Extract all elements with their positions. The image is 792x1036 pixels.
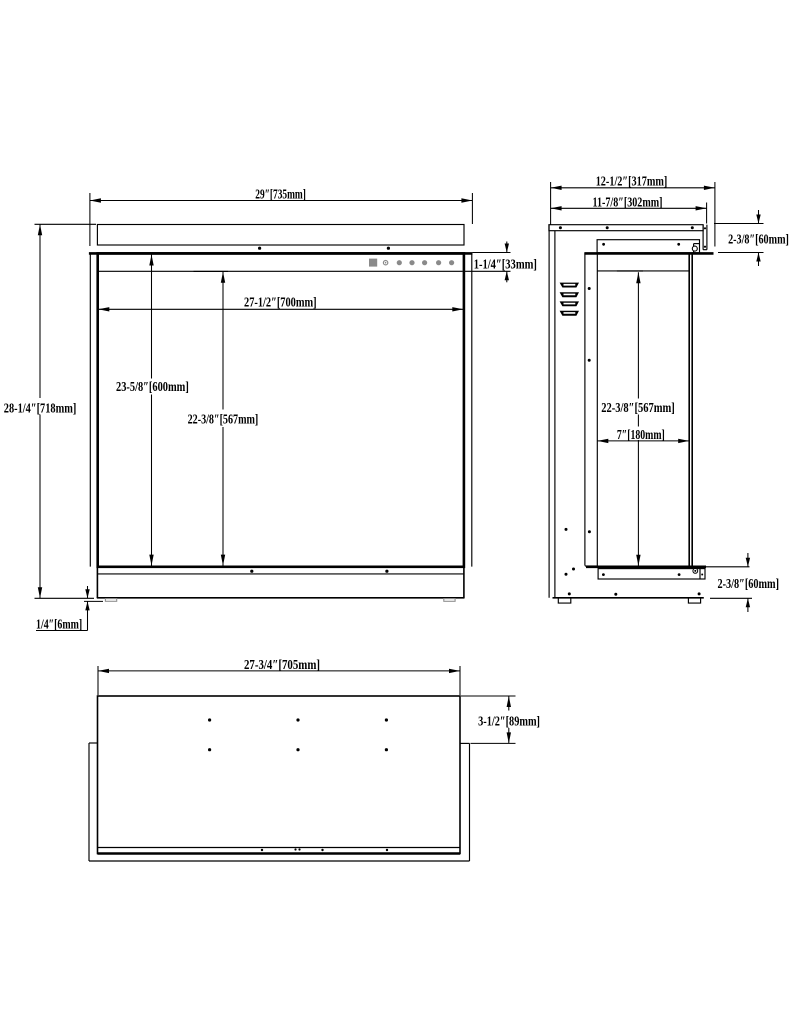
svg-text:12-1/2″[317mm]: 12-1/2″[317mm] <box>596 174 668 189</box>
svg-text:2-3/8″[60mm]: 2-3/8″[60mm] <box>718 577 780 592</box>
svg-text:29″[735mm]: 29″[735mm] <box>255 187 306 202</box>
svg-text:23-5/8″[600mm]: 23-5/8″[600mm] <box>116 380 189 395</box>
svg-text:3-1/2″[89mm]: 3-1/2″[89mm] <box>478 715 540 730</box>
svg-text:2-3/8″[60mm]: 2-3/8″[60mm] <box>728 233 789 248</box>
svg-text:7″[180mm]: 7″[180mm] <box>617 428 665 443</box>
svg-text:11-7/8″[302mm]: 11-7/8″[302mm] <box>593 196 663 211</box>
svg-text:22-3/8″[567mm]: 22-3/8″[567mm] <box>601 401 675 416</box>
svg-text:27-1/2″[700mm]: 27-1/2″[700mm] <box>244 296 317 311</box>
svg-text:27-3/4″[705mm]: 27-3/4″[705mm] <box>244 658 320 673</box>
svg-text:28-1/4″[718mm]: 28-1/4″[718mm] <box>4 402 77 417</box>
svg-text:22-3/8″[567mm]: 22-3/8″[567mm] <box>188 413 259 428</box>
svg-text:1/4″[6mm]: 1/4″[6mm] <box>36 617 82 632</box>
svg-text:1-1/4″[33mm]: 1-1/4″[33mm] <box>474 257 537 272</box>
